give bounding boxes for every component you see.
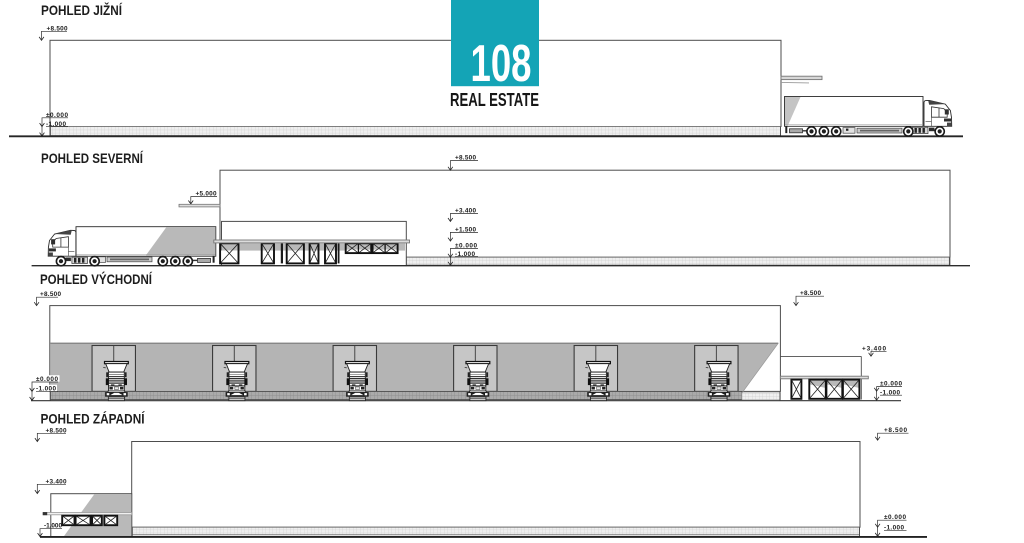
svg-text:POHLED VÝCHODNÍ: POHLED VÝCHODNÍ <box>40 270 153 287</box>
svg-text:REAL ESTATE: REAL ESTATE <box>450 89 539 110</box>
svg-text:108: 108 <box>471 34 532 92</box>
svg-text:POHLED SEVERNÍ: POHLED SEVERNÍ <box>41 150 144 166</box>
svg-text:POHLED JIŽNÍ: POHLED JIŽNÍ <box>41 1 123 18</box>
svg-text:POHLED ZÁPADNÍ: POHLED ZÁPADNÍ <box>41 411 146 427</box>
